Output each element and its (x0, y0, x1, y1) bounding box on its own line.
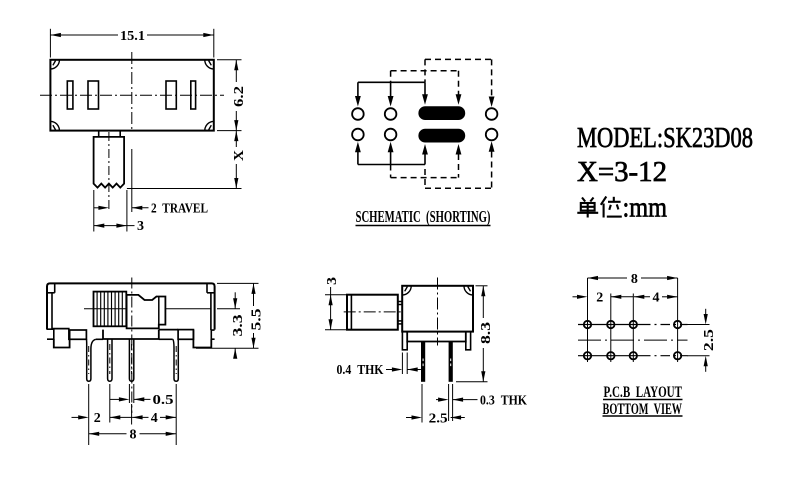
svg-text:2.5: 2.5 (429, 411, 448, 426)
svg-text:4: 4 (653, 291, 660, 306)
svg-text:8.3: 8.3 (479, 322, 494, 344)
svg-text:3: 3 (325, 277, 340, 285)
svg-text:8: 8 (631, 272, 638, 287)
svg-text:6.2: 6.2 (232, 86, 247, 107)
svg-text:4: 4 (151, 411, 158, 426)
svg-text:0.5: 0.5 (153, 393, 174, 408)
svg-text::mm: :mm (623, 193, 668, 224)
svg-text:0.4 THK: 0.4 THK (337, 363, 384, 378)
svg-text:5.5: 5.5 (249, 309, 264, 331)
svg-text:SCHEMATIC (SHORTING): SCHEMATIC (SHORTING) (356, 207, 491, 226)
svg-text:2 TRAVEL: 2 TRAVEL (151, 201, 208, 216)
svg-text:X=3-12: X=3-12 (577, 157, 667, 188)
svg-text:3: 3 (137, 219, 144, 234)
svg-text:P.C.B LAYOUT: P.C.B LAYOUT (604, 384, 683, 401)
svg-text:3.3: 3.3 (231, 315, 246, 337)
svg-text:2: 2 (596, 291, 603, 306)
svg-text:2: 2 (94, 411, 101, 426)
svg-text:MODEL:SK23D08: MODEL:SK23D08 (577, 123, 753, 154)
svg-text:15.1: 15.1 (120, 29, 145, 44)
svg-text:8: 8 (130, 428, 137, 443)
svg-text:0.3 THK: 0.3 THK (480, 393, 527, 408)
svg-text:X: X (232, 150, 247, 161)
svg-text:2.5: 2.5 (702, 329, 717, 351)
